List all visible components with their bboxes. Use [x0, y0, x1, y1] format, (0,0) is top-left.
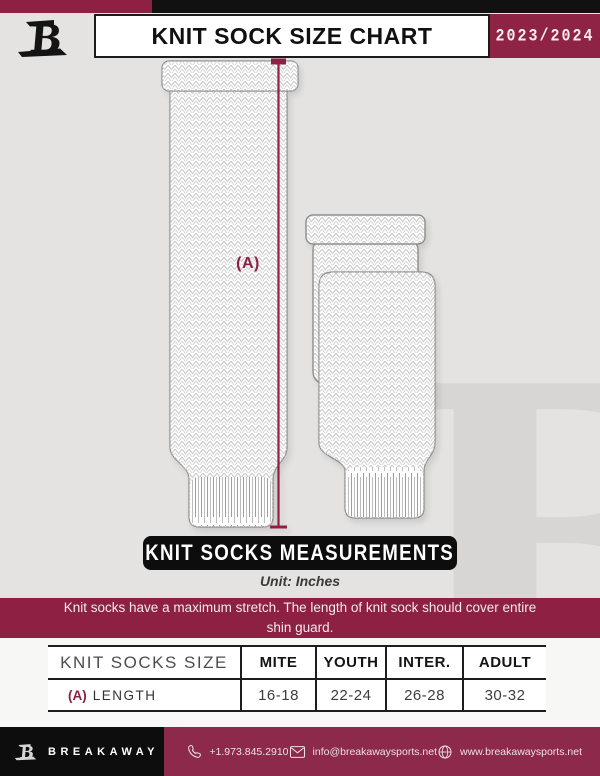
- footer-phone-text: +1.973.845.2910: [209, 746, 288, 758]
- sock-small: [319, 272, 435, 518]
- size-table-header-cell: MITE: [240, 647, 315, 678]
- globe-icon: [437, 744, 453, 760]
- header-knit-socks-size: KNIT SOCKS SIZE: [60, 653, 228, 673]
- length-value-inter-cell: 26-28: [385, 680, 462, 710]
- footer-email[interactable]: info@breakawaysports.net: [289, 745, 437, 759]
- length-row-key: (A): [68, 688, 87, 703]
- length-value-mite: 16-18: [258, 687, 299, 704]
- length-value-youth-cell: 22-24: [315, 680, 385, 710]
- length-value-adult: 30-32: [485, 687, 526, 704]
- stretch-notice-bar: Knit socks have a maximum stretch. The l…: [0, 598, 600, 638]
- header-youth: YOUTH: [324, 654, 379, 671]
- knit-sock-illustration: [140, 57, 460, 535]
- footer-phone[interactable]: +1.973.845.2910: [186, 744, 288, 759]
- size-table-header-cell: KNIT SOCKS SIZE: [48, 647, 240, 678]
- length-value-adult-cell: 30-32: [462, 680, 546, 710]
- header: B KNIT SOCK SIZE CHART 2023/2024: [0, 13, 600, 57]
- length-row-label-cell: (A) LENGTH: [48, 680, 240, 710]
- measure-label-a: (A): [222, 255, 274, 273]
- measurements-banner: KNIT SOCKS MEASUREMENTS: [143, 536, 457, 570]
- size-table-header-cell: YOUTH: [315, 647, 385, 678]
- stretch-notice-text: Knit socks have a maximum stretch. The l…: [61, 598, 539, 637]
- size-table-length-row: (A) LENGTH 16-18 22-24 26-28 30-32: [48, 680, 546, 710]
- bottom-section: KNIT SOCKS SIZE MITE YOUTH INTER. ADULT …: [0, 638, 600, 727]
- footer-email-text: info@breakawaysports.net: [313, 746, 437, 758]
- footer-brand-block: B BREAKAWAY: [0, 727, 164, 776]
- footer-website-text: www.breakawaysports.net: [460, 746, 582, 758]
- header-mite: MITE: [260, 654, 298, 671]
- season-label: 2023/2024: [495, 26, 594, 46]
- unit-label: Unit: Inches: [0, 573, 600, 589]
- measurements-banner-label: KNIT SOCKS MEASUREMENTS: [146, 540, 455, 566]
- length-value-inter: 26-28: [404, 687, 445, 704]
- footer-brand-name: BREAKAWAY: [48, 746, 159, 758]
- size-table-header-cell: INTER.: [385, 647, 462, 678]
- size-table-header-row: KNIT SOCKS SIZE MITE YOUTH INTER. ADULT: [48, 647, 546, 680]
- phone-icon: [186, 744, 202, 759]
- length-row-label: LENGTH: [93, 688, 157, 703]
- envelope-icon: [289, 745, 306, 759]
- size-table-header-cell: ADULT: [462, 647, 546, 678]
- svg-text:B: B: [19, 742, 35, 762]
- header-inter: INTER.: [398, 654, 450, 671]
- svg-text:B: B: [28, 16, 64, 59]
- length-value-mite-cell: 16-18: [240, 680, 315, 710]
- footer-contact-bar: +1.973.845.2910 info@breakawaysports.net…: [164, 727, 600, 776]
- size-chart-page: B B KNIT SOCK SIZE CHART 2023/2024: [0, 0, 600, 776]
- breakaway-monogram-icon: B: [14, 739, 41, 764]
- footer-website[interactable]: www.breakawaysports.net: [437, 744, 582, 760]
- header-adult: ADULT: [479, 654, 531, 671]
- breakaway-monogram-icon: B: [16, 15, 78, 59]
- length-value-youth: 22-24: [331, 687, 372, 704]
- size-table: KNIT SOCKS SIZE MITE YOUTH INTER. ADULT …: [48, 645, 546, 712]
- season-badge: 2023/2024: [490, 14, 600, 58]
- page-title: KNIT SOCK SIZE CHART: [152, 23, 433, 50]
- top-accent-strip-maroon: [0, 0, 152, 13]
- footer: B BREAKAWAY +1.973.845.2910 info@breakaw…: [0, 727, 600, 776]
- top-accent-strip: [0, 0, 600, 13]
- page-title-box: KNIT SOCK SIZE CHART: [94, 14, 490, 58]
